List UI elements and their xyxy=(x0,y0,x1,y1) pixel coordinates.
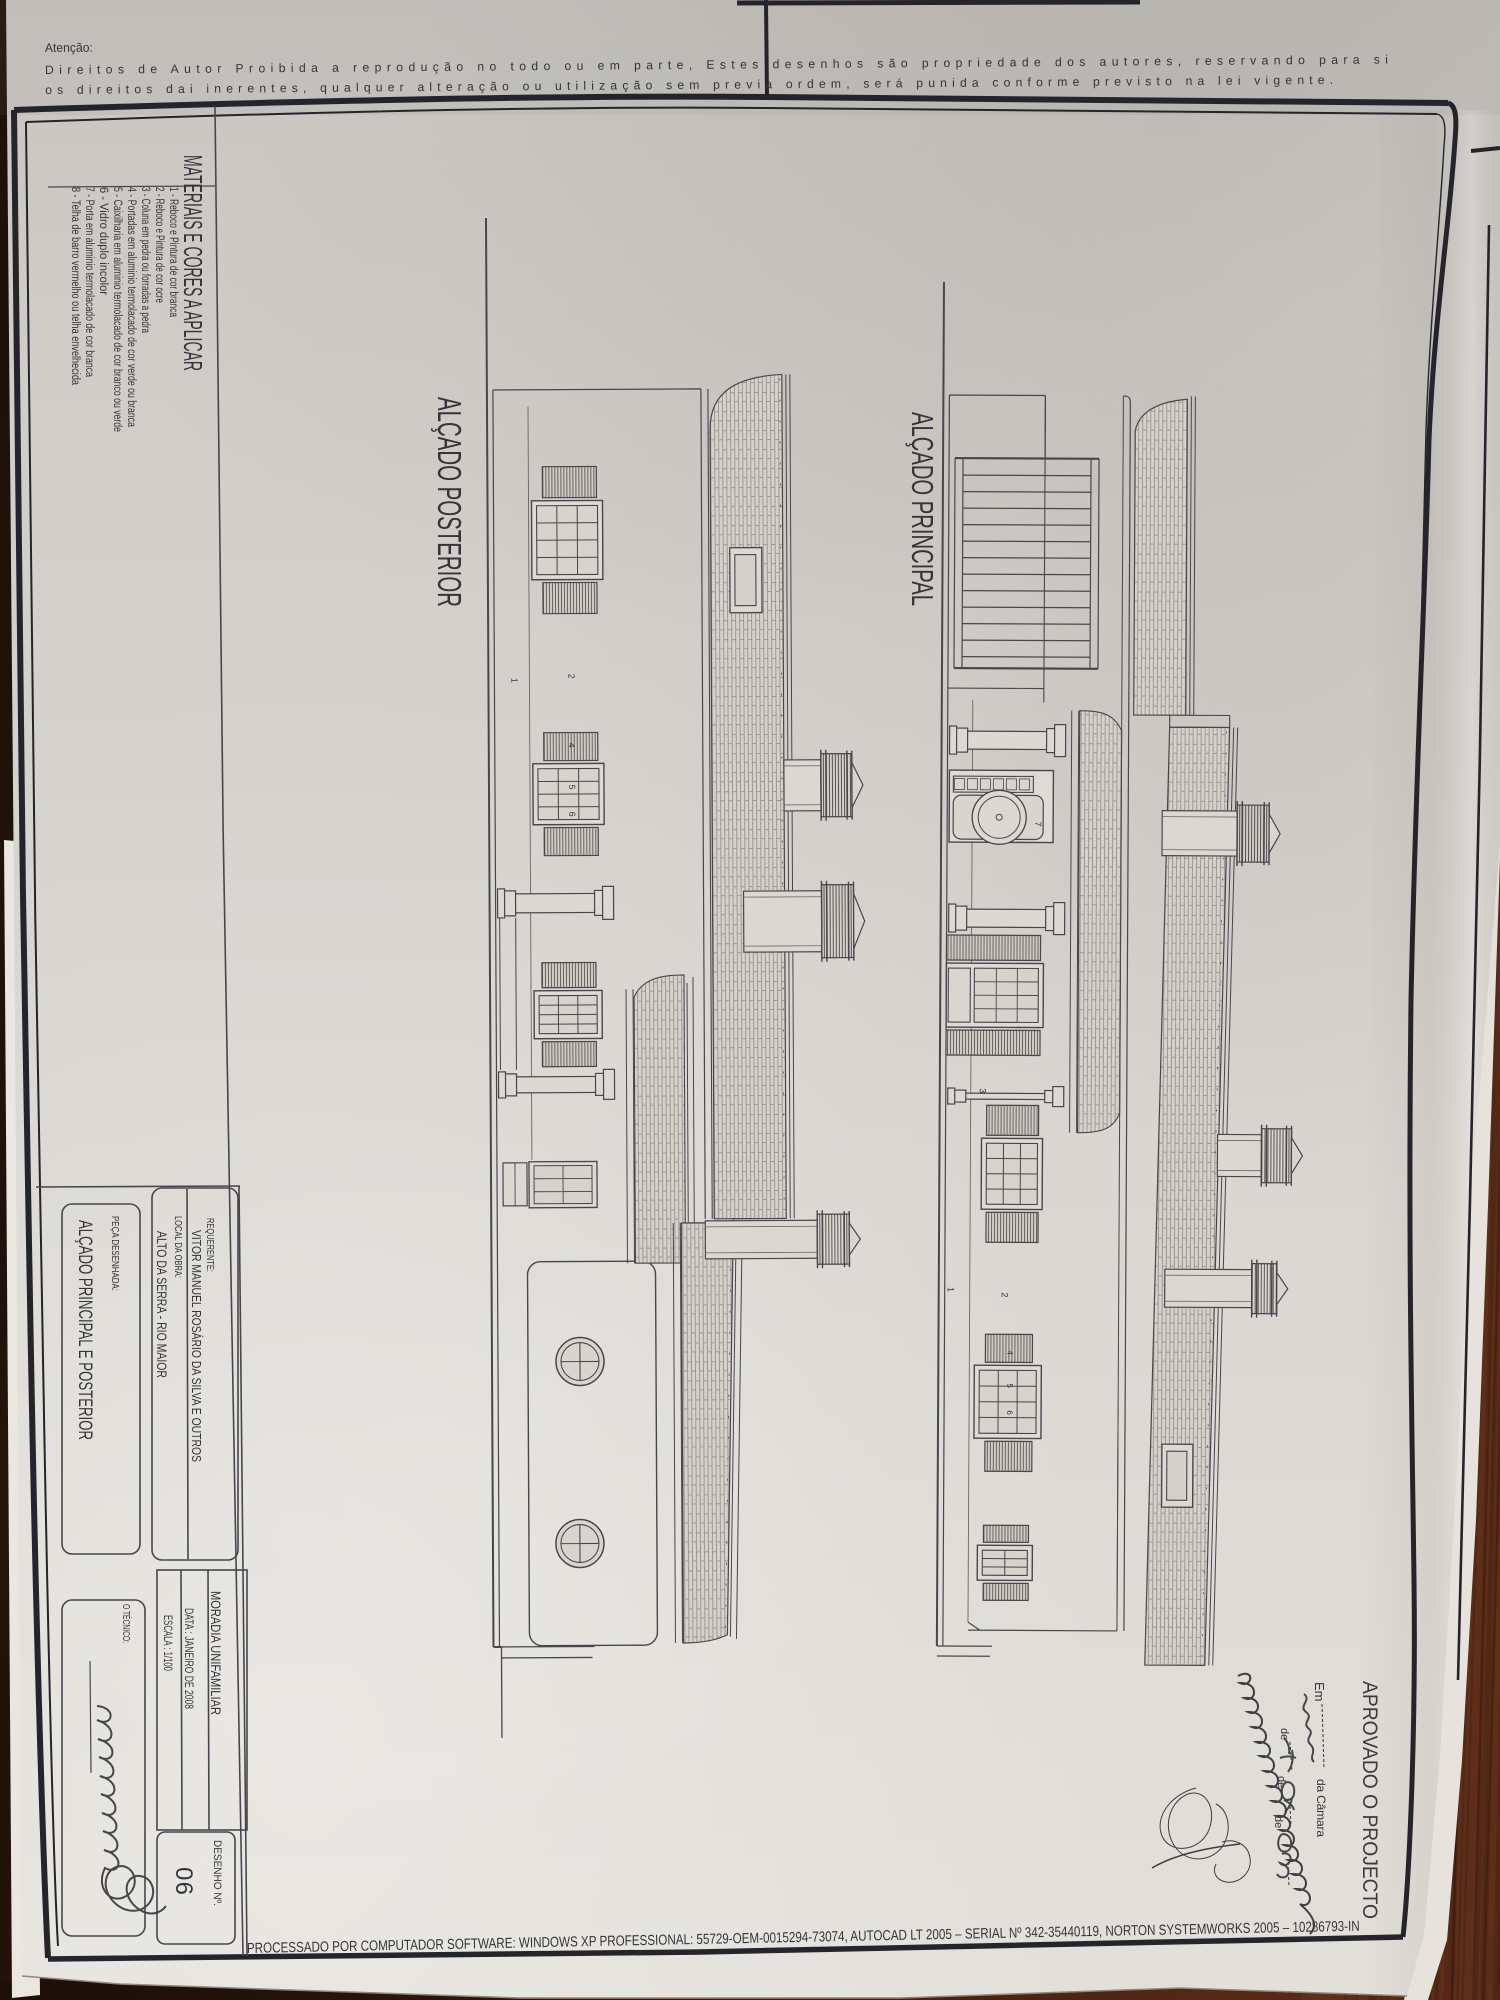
svg-text:5 - Caixilharia em aluminio te: 5 - Caixilharia em aluminio termolacado … xyxy=(111,187,123,432)
svg-text:VITOR MANUEL ROSÁRIO DA SILVA: VITOR MANUEL ROSÁRIO DA SILVA E OUTROS xyxy=(189,1230,204,1462)
svg-text:8 - Telha de barro vermelho ou: 8 - Telha de barro vermelho ou telha env… xyxy=(69,187,81,385)
svg-text:LOCAL DA OBRA:: LOCAL DA OBRA: xyxy=(172,1216,183,1278)
svg-text:ALTO DA SERRA - RIO MAIOR: ALTO DA SERRA - RIO MAIOR xyxy=(154,1231,169,1378)
svg-text:MATERIAIS E CORES A APLICAR: MATERIAIS E CORES A APLICAR xyxy=(178,155,208,371)
svg-text:2: 2 xyxy=(566,674,576,679)
svg-text:DATA : JANEIRO DE 2008: DATA : JANEIRO DE 2008 xyxy=(182,1608,196,1709)
svg-text:REQUERENTE:: REQUERENTE: xyxy=(204,1218,215,1272)
svg-text:06: 06 xyxy=(170,1867,197,1895)
svg-text:ESCALA : 1/100: ESCALA : 1/100 xyxy=(161,1615,175,1671)
svg-text:2 - Reboco e Pintura de cor oc: 2 - Reboco e Pintura de cor ocre xyxy=(153,187,165,303)
svg-text:PEÇA DESENHADA:: PEÇA DESENHADA: xyxy=(109,1216,120,1291)
svg-text:3: 3 xyxy=(978,1088,988,1093)
svg-text:MORADIA UNIFAMILIAR: MORADIA UNIFAMILIAR xyxy=(208,1591,223,1715)
svg-text:Em: Em xyxy=(1312,1682,1327,1702)
svg-text:O TÉCNICO:: O TÉCNICO: xyxy=(120,1604,133,1643)
svg-text:Atenção:: Atenção: xyxy=(45,41,93,55)
svg-text:ALÇADO PRINCIPAL E POSTERIOR: ALÇADO PRINCIPAL E POSTERIOR xyxy=(74,1220,95,1440)
svg-text:4 - Portadas em aluminio termo: 4 - Portadas em aluminio termolacado de … xyxy=(125,187,137,427)
svg-text:1: 1 xyxy=(946,1287,956,1292)
svg-text:4: 4 xyxy=(1005,1350,1014,1355)
svg-text:APROVADO O PROJECTO: APROVADO O PROJECTO xyxy=(1358,1681,1381,1919)
svg-text:6: 6 xyxy=(567,812,577,817)
svg-text:4: 4 xyxy=(567,743,577,748)
svg-text:1: 1 xyxy=(509,678,519,683)
svg-text:ALÇADO PRINCIPAL: ALÇADO PRINCIPAL xyxy=(905,412,940,606)
svg-text:5: 5 xyxy=(567,785,577,790)
svg-text:DESENHO Nº.: DESENHO Nº. xyxy=(211,1840,223,1906)
svg-text:2: 2 xyxy=(1000,1292,1010,1297)
svg-text:6 - Vidro duplo incolor: 6 - Vidro duplo incolor xyxy=(97,187,109,295)
svg-text:5: 5 xyxy=(1005,1383,1014,1388)
svg-text:3 - Coluna em pedra ou forrada: 3 - Coluna em pedra ou forradas a pedra xyxy=(139,187,151,333)
svg-text:7 - Porta em aluminio termolac: 7 - Porta em aluminio termolacado de cor… xyxy=(83,187,95,377)
svg-text:6: 6 xyxy=(1005,1410,1014,1415)
svg-text:7: 7 xyxy=(1033,821,1043,826)
svg-text:de: de xyxy=(1272,1816,1284,1828)
svg-text:da Câmara: da Câmara xyxy=(1314,1779,1328,1837)
svg-text:ALÇADO POSTERIOR: ALÇADO POSTERIOR xyxy=(431,397,468,607)
svg-text:1 - Reboco e Pintura de cor br: 1 - Reboco e Pintura de cor branca xyxy=(167,187,179,317)
